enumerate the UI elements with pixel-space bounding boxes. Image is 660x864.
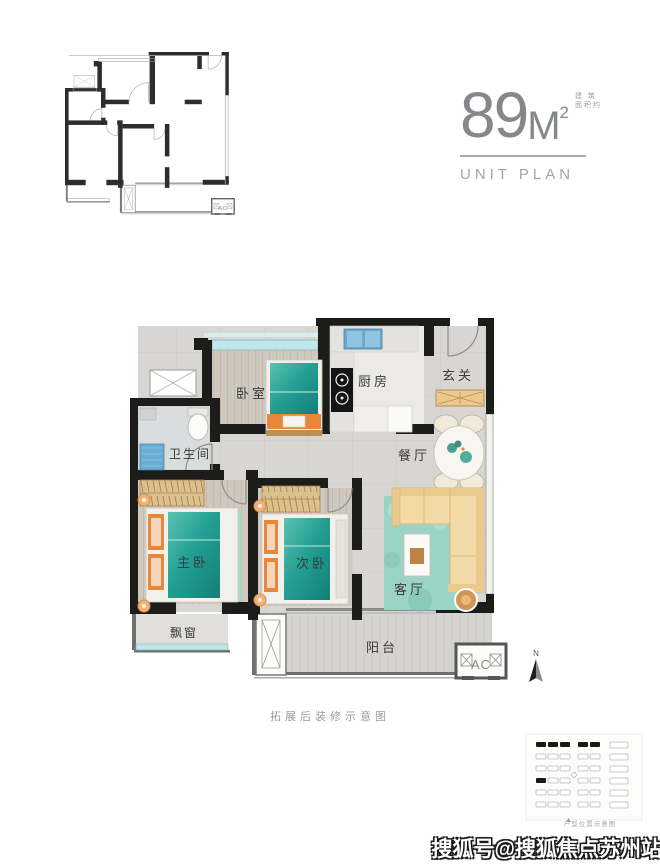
bedroom-furniture — [266, 360, 322, 436]
header-divider — [460, 155, 586, 157]
main-floor-plan: AC N 卧室 厨房 玄关 卫生间 餐厅 主卧 次卧 客厅 飘窗 阳台 — [130, 318, 543, 682]
room-label-living-room: 客厅 — [394, 582, 426, 597]
room-label-kitchen: 厨房 — [358, 374, 390, 389]
balcony-duct-box — [256, 614, 286, 675]
room-label-master-bedroom: 主卧 — [177, 555, 209, 570]
unit-plan-subtitle: UNIT PLAN — [460, 166, 592, 183]
room-label-balcony: 阳台 — [366, 640, 398, 655]
area-header: 89 M 2 建 筑 面积约 UNIT PLAN — [460, 84, 592, 183]
key-plan-thumbnail — [65, 52, 234, 215]
ac-label: AC — [471, 657, 491, 672]
room-label-bay-window: 飘窗 — [170, 626, 198, 640]
ac-platform: AC — [456, 644, 506, 680]
area-unit: M — [527, 106, 559, 146]
foyer-console-table — [436, 390, 484, 406]
area-exponent: 2 — [560, 104, 569, 121]
room-label-foyer: 玄关 — [442, 368, 474, 383]
area-note: 建 筑 面积约 — [575, 92, 602, 110]
dining-set — [434, 415, 484, 491]
plan-caption: 拓展后装修示意图 — [230, 708, 430, 724]
site-plan-thumbnail — [526, 734, 642, 822]
north-arrow-icon: N — [529, 649, 543, 682]
room-label-bathroom: 卫生间 — [169, 447, 211, 461]
site-plan-caption: 户型位置示意图 — [540, 818, 640, 828]
room-label-bedroom: 卧室 — [236, 386, 268, 401]
room-label-dining: 餐厅 — [398, 448, 430, 463]
ac-platform-topleft — [150, 370, 196, 396]
room-label-second-bedroom: 次卧 — [296, 556, 328, 571]
area-number: 89 — [460, 84, 527, 146]
unit-plan-poster: AC N 卧室 厨房 玄关 卫生间 餐厅 主卧 次卧 客厅 飘窗 阳台 — [0, 0, 660, 864]
north-label: N — [533, 649, 539, 658]
